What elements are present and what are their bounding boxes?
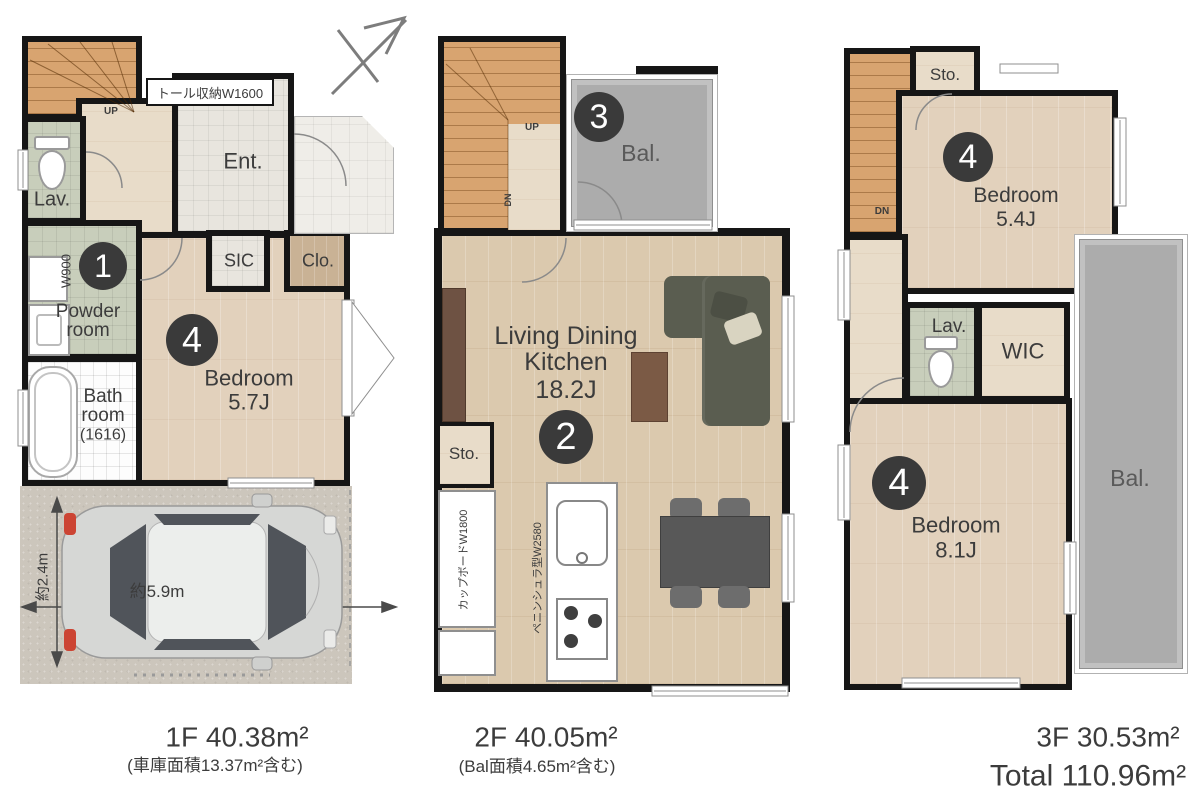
entrance-label-1f: Ent. (223, 149, 262, 172)
ldk-label-1: Living Dining (494, 323, 637, 349)
sic-label: SIC (224, 252, 254, 271)
burner-icon (564, 634, 578, 648)
entrance-porch-1f (294, 116, 394, 234)
ldk-label-3: 18.2J (535, 377, 596, 403)
wic-label: WIC (1002, 339, 1045, 362)
bedroom2-label-2: 8.1J (935, 538, 977, 561)
stairs-up-label-2f: UP (525, 123, 539, 134)
balcony-label-2f: Bal. (621, 141, 661, 165)
cupboard-label: カップボードW1800 (455, 510, 471, 611)
bathtub-inner-icon (34, 372, 72, 472)
lavatory-label-1f: Lav. (34, 190, 70, 211)
balcony-label-3f: Bal. (1110, 466, 1150, 490)
tv-board (442, 288, 466, 422)
burner-icon (564, 606, 578, 620)
lavatory-label-3f: Lav. (932, 317, 967, 337)
fridge-space (438, 630, 496, 676)
burner-icon (588, 614, 602, 628)
garage-1f (20, 486, 352, 684)
dining-chair (718, 586, 750, 608)
area-note-1f: (車庫面積13.37m²含む) (127, 757, 303, 775)
dining-table (660, 516, 770, 588)
garage-depth-label: 約2.4m (32, 553, 53, 601)
room-number-2-badge: 2 (539, 410, 593, 464)
stairs-up-label-1f: UP (104, 107, 118, 118)
toilet-tank-icon (34, 136, 70, 150)
stairs-dn-label-2f: DN (503, 194, 513, 207)
room-number-1-badge: 1 (79, 242, 127, 290)
closet-label: Clo. (302, 252, 334, 271)
area-label-3f: 3F 30.53m² (1036, 722, 1179, 751)
faucet-icon (576, 552, 588, 564)
storage-label-2f: Sto. (449, 445, 479, 463)
floor-plan-sheet: トール収納W1600 UP Ent. Lav. W900 1 Powder ro… (0, 0, 1200, 805)
room-number-4-badge-3f-a: 4 (943, 132, 993, 182)
bedroom-label-1f-1: Bedroom (204, 366, 293, 389)
bedroom1-label-1: Bedroom (973, 185, 1058, 207)
total-area-label: Total 110.96m² (990, 760, 1186, 792)
powder-room-label-1: Powder (56, 302, 120, 322)
balcony-3f (1080, 240, 1182, 668)
kitchen-type-label: ペニンシュラ型W2580 (529, 522, 545, 634)
bathroom-label-3: (1616) (80, 428, 126, 445)
bathroom-label-2: room (81, 406, 124, 426)
area-label-1f: 1F 40.38m² (165, 722, 308, 751)
dining-chair (670, 586, 702, 608)
garage-width-label: 約5.9m (130, 583, 185, 601)
ldk-label-2: Kitchen (524, 349, 607, 375)
room-number-4-badge-1f: 4 (166, 314, 218, 366)
tall-storage-text: トール収納W1600 (157, 83, 263, 102)
tall-storage-label: トール収納W1600 (146, 78, 274, 106)
coffee-table (631, 352, 668, 422)
bedroom-label-1f-2: 5.7J (228, 390, 270, 413)
bedroom2-label-1: Bedroom (911, 513, 1000, 536)
powder-width-label: W900 (59, 254, 74, 288)
area-note-2f: (Bal面積4.65m²含む) (459, 758, 616, 776)
room-number-3-badge: 3 (574, 92, 624, 142)
stair-landing-2f (508, 124, 560, 230)
bedroom1-label-2: 5.4J (996, 209, 1036, 231)
storage-label-3f: Sto. (930, 66, 960, 84)
north-arrow-icon (332, 18, 406, 94)
powder-room-label-2: room (66, 321, 109, 341)
stove-icon (556, 598, 608, 660)
bathroom-label-1: Bath (83, 387, 122, 407)
stairs-dn-label-3f: DN (875, 207, 889, 218)
room-number-4-badge-3f-b: 4 (872, 456, 926, 510)
area-label-2f: 2F 40.05m² (474, 722, 617, 751)
toilet-tank-icon-3f (924, 336, 958, 350)
